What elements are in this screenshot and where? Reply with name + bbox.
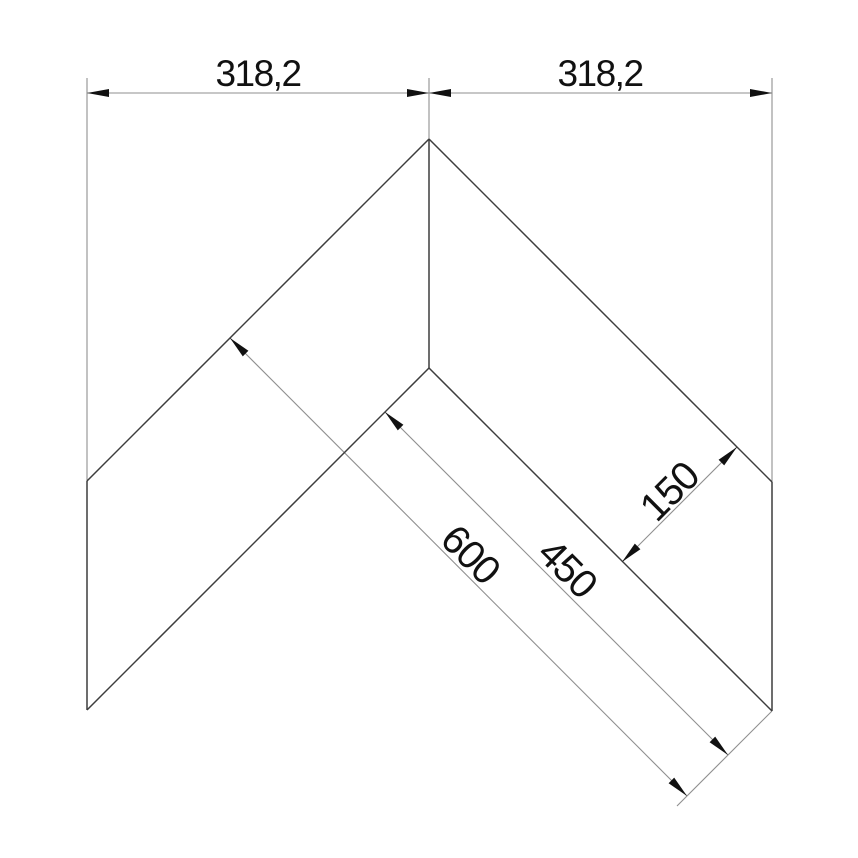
shape-outline [87,139,772,711]
arrowhead-top-left-outer [87,89,109,97]
dimension-labels: 318,2 318,2 600 450 150 [215,53,707,607]
outer-right-edge [429,139,772,482]
arrowhead-top-left-inner [407,89,429,97]
extension-line-bottom-right-diagonal [677,711,772,806]
arrowhead-top-right-inner [429,89,451,97]
arrowhead-top-right-outer [750,89,772,97]
dim-label-600: 600 [432,517,508,593]
technical-drawing-canvas: 318,2 318,2 600 450 150 [0,0,858,858]
dim-label-top-left: 318,2 [215,53,300,94]
dim-label-450: 450 [529,531,605,607]
technical-drawing-page: 318,2 318,2 600 450 150 [0,0,858,858]
outer-left-edge [87,139,429,481]
inner-left-edge [87,368,429,710]
dim-label-150: 150 [632,454,708,530]
dim-label-top-right: 318,2 [557,53,642,94]
